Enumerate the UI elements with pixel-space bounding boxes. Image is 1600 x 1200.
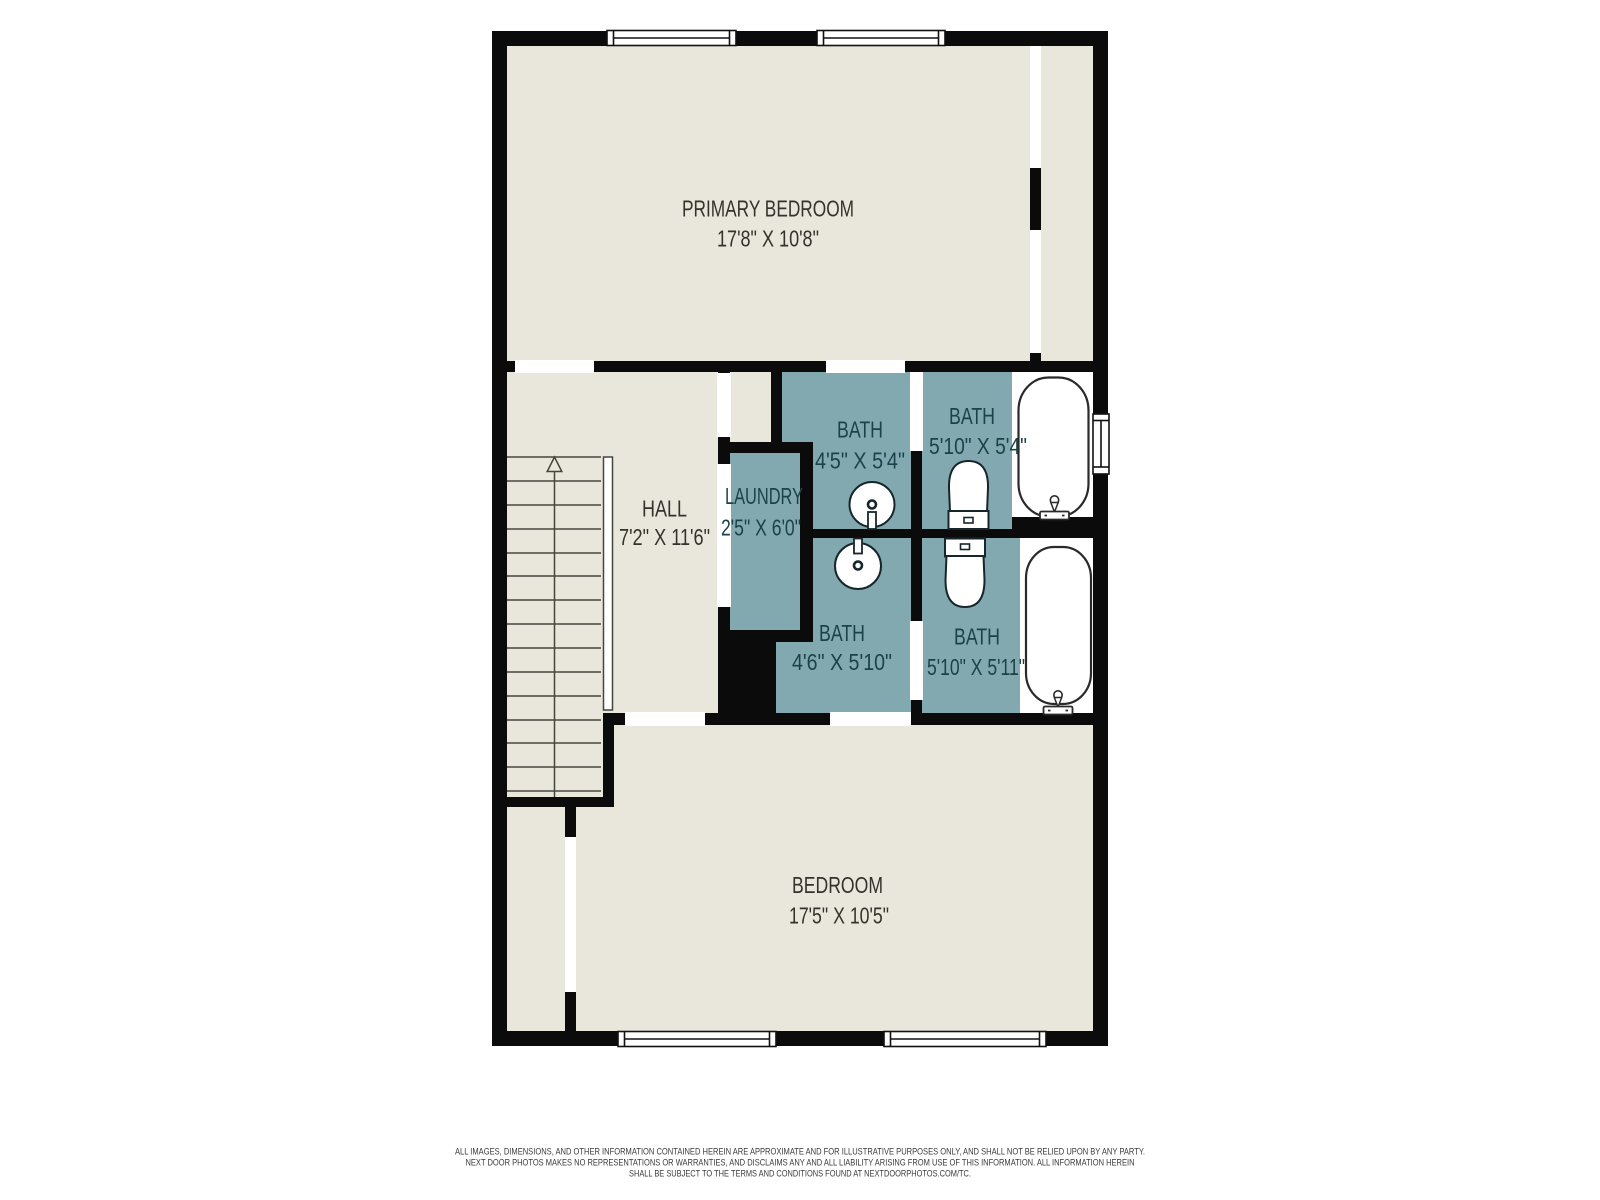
- svg-text:2'5" X 6'0": 2'5" X 6'0": [721, 515, 801, 541]
- svg-text:SHALL BE SUBJECT TO THE TERMS: SHALL BE SUBJECT TO THE TERMS AND CONDIT…: [629, 1169, 971, 1180]
- svg-text:17'8" X 10'8": 17'8" X 10'8": [717, 226, 819, 252]
- svg-text:BATH: BATH: [837, 417, 883, 443]
- svg-text:BEDROOM: BEDROOM: [792, 872, 883, 898]
- svg-text:BATH: BATH: [954, 624, 1000, 650]
- svg-text:BATH: BATH: [949, 403, 995, 429]
- svg-text:PRIMARY BEDROOM: PRIMARY BEDROOM: [682, 196, 854, 222]
- svg-text:7'2" X 11'6": 7'2" X 11'6": [619, 524, 710, 550]
- svg-text:5'10" X 5'4": 5'10" X 5'4": [929, 433, 1027, 459]
- svg-text:5'10" X 5'11": 5'10" X 5'11": [927, 654, 1025, 680]
- svg-text:NEXT DOOR PHOTOS MAKES NO REPR: NEXT DOOR PHOTOS MAKES NO REPRESENTATION…: [466, 1158, 1135, 1169]
- svg-text:BATH: BATH: [819, 620, 865, 646]
- svg-text:17'5" X 10'5": 17'5" X 10'5": [789, 903, 889, 929]
- svg-text:ALL IMAGES, DIMENSIONS, AND OT: ALL IMAGES, DIMENSIONS, AND OTHER INFORM…: [455, 1147, 1145, 1158]
- svg-text:4'6" X 5'10": 4'6" X 5'10": [792, 649, 892, 675]
- svg-text:4'5" X 5'4": 4'5" X 5'4": [815, 448, 905, 474]
- svg-text:HALL: HALL: [642, 496, 687, 522]
- svg-text:LAUNDRY: LAUNDRY: [725, 483, 803, 509]
